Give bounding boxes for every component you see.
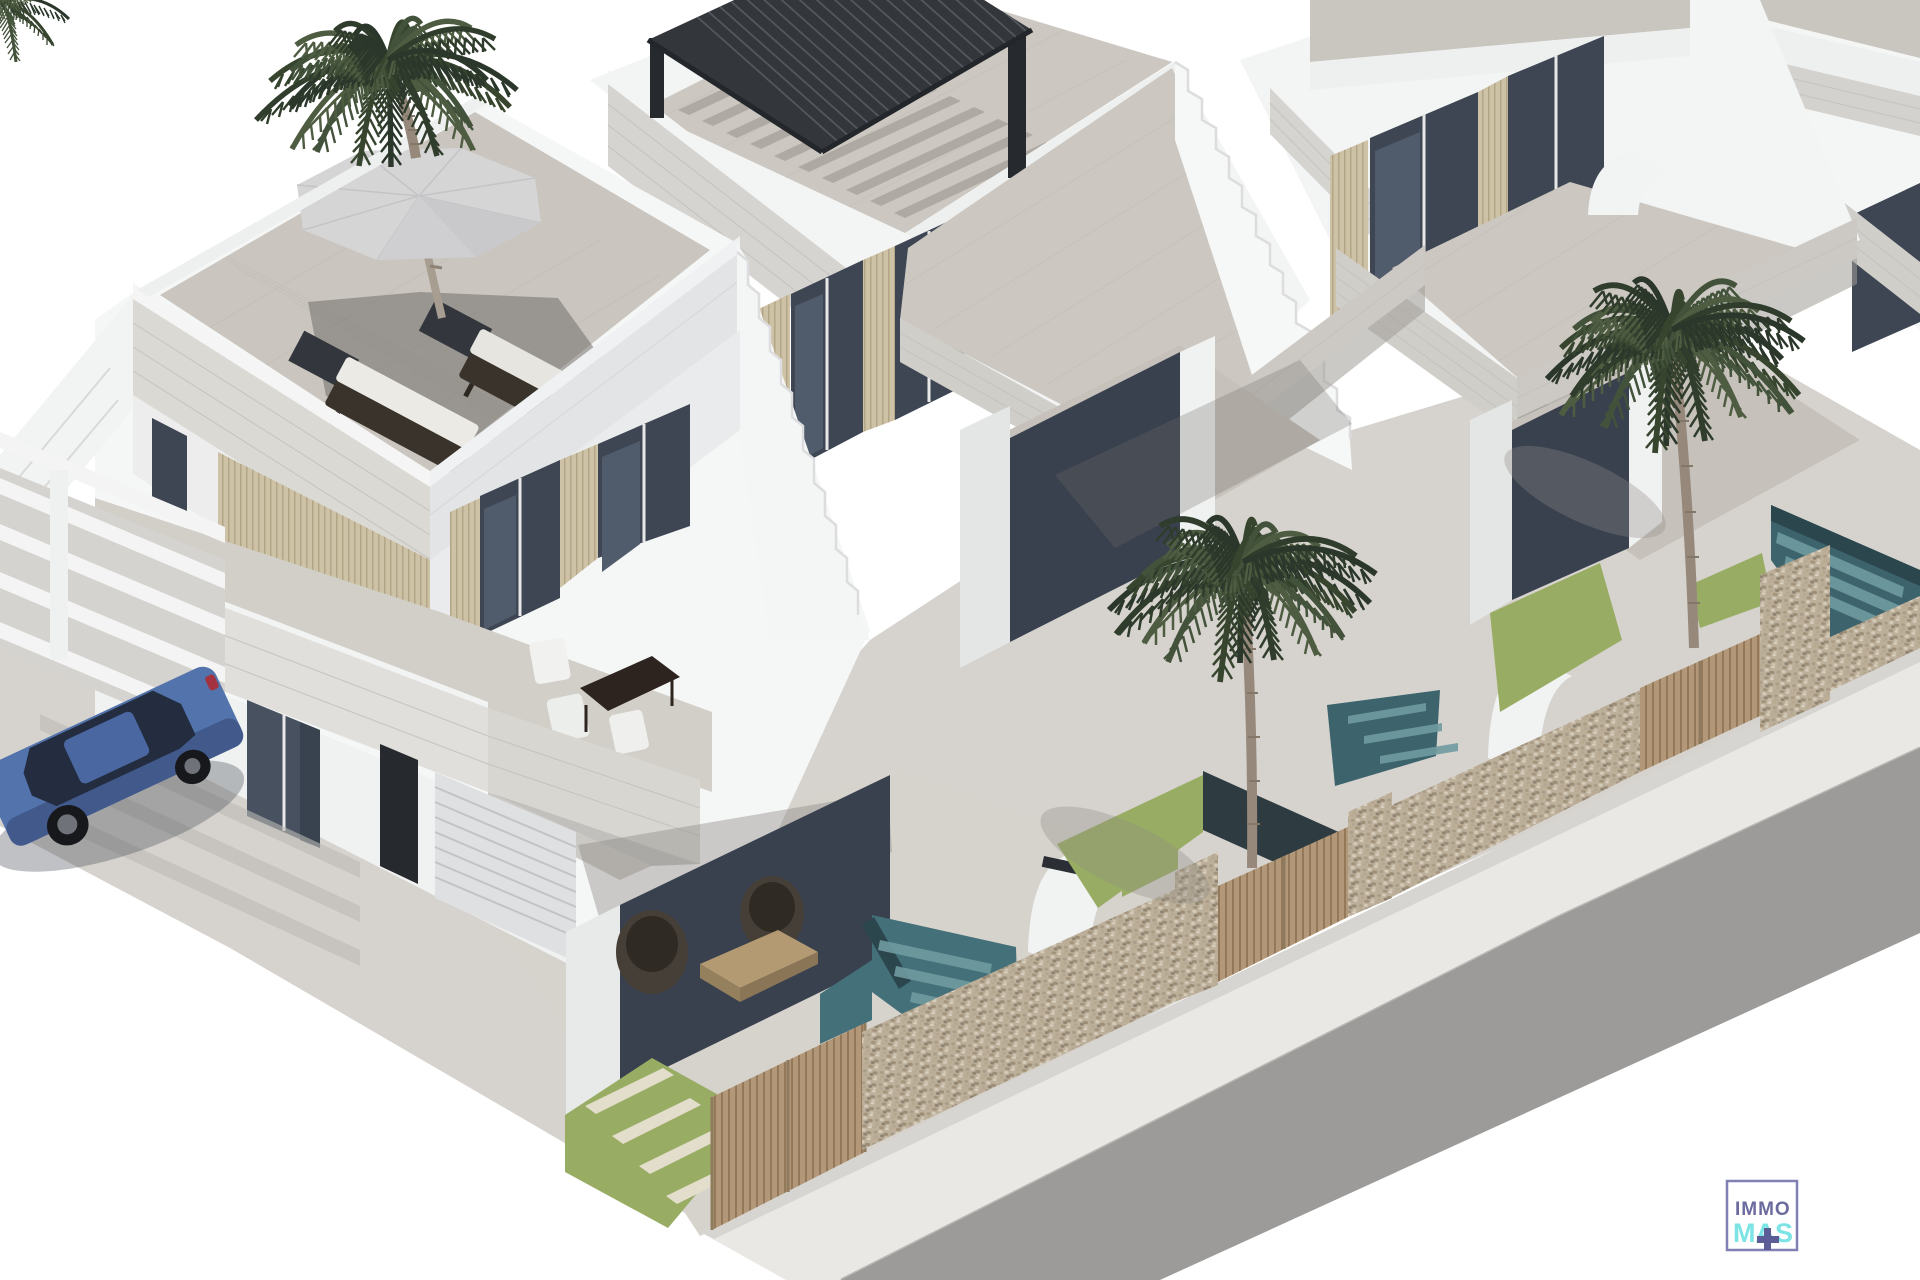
svg-text:MAS: MAS: [1733, 1218, 1793, 1248]
svg-text:IMMO: IMMO: [1735, 1199, 1791, 1220]
